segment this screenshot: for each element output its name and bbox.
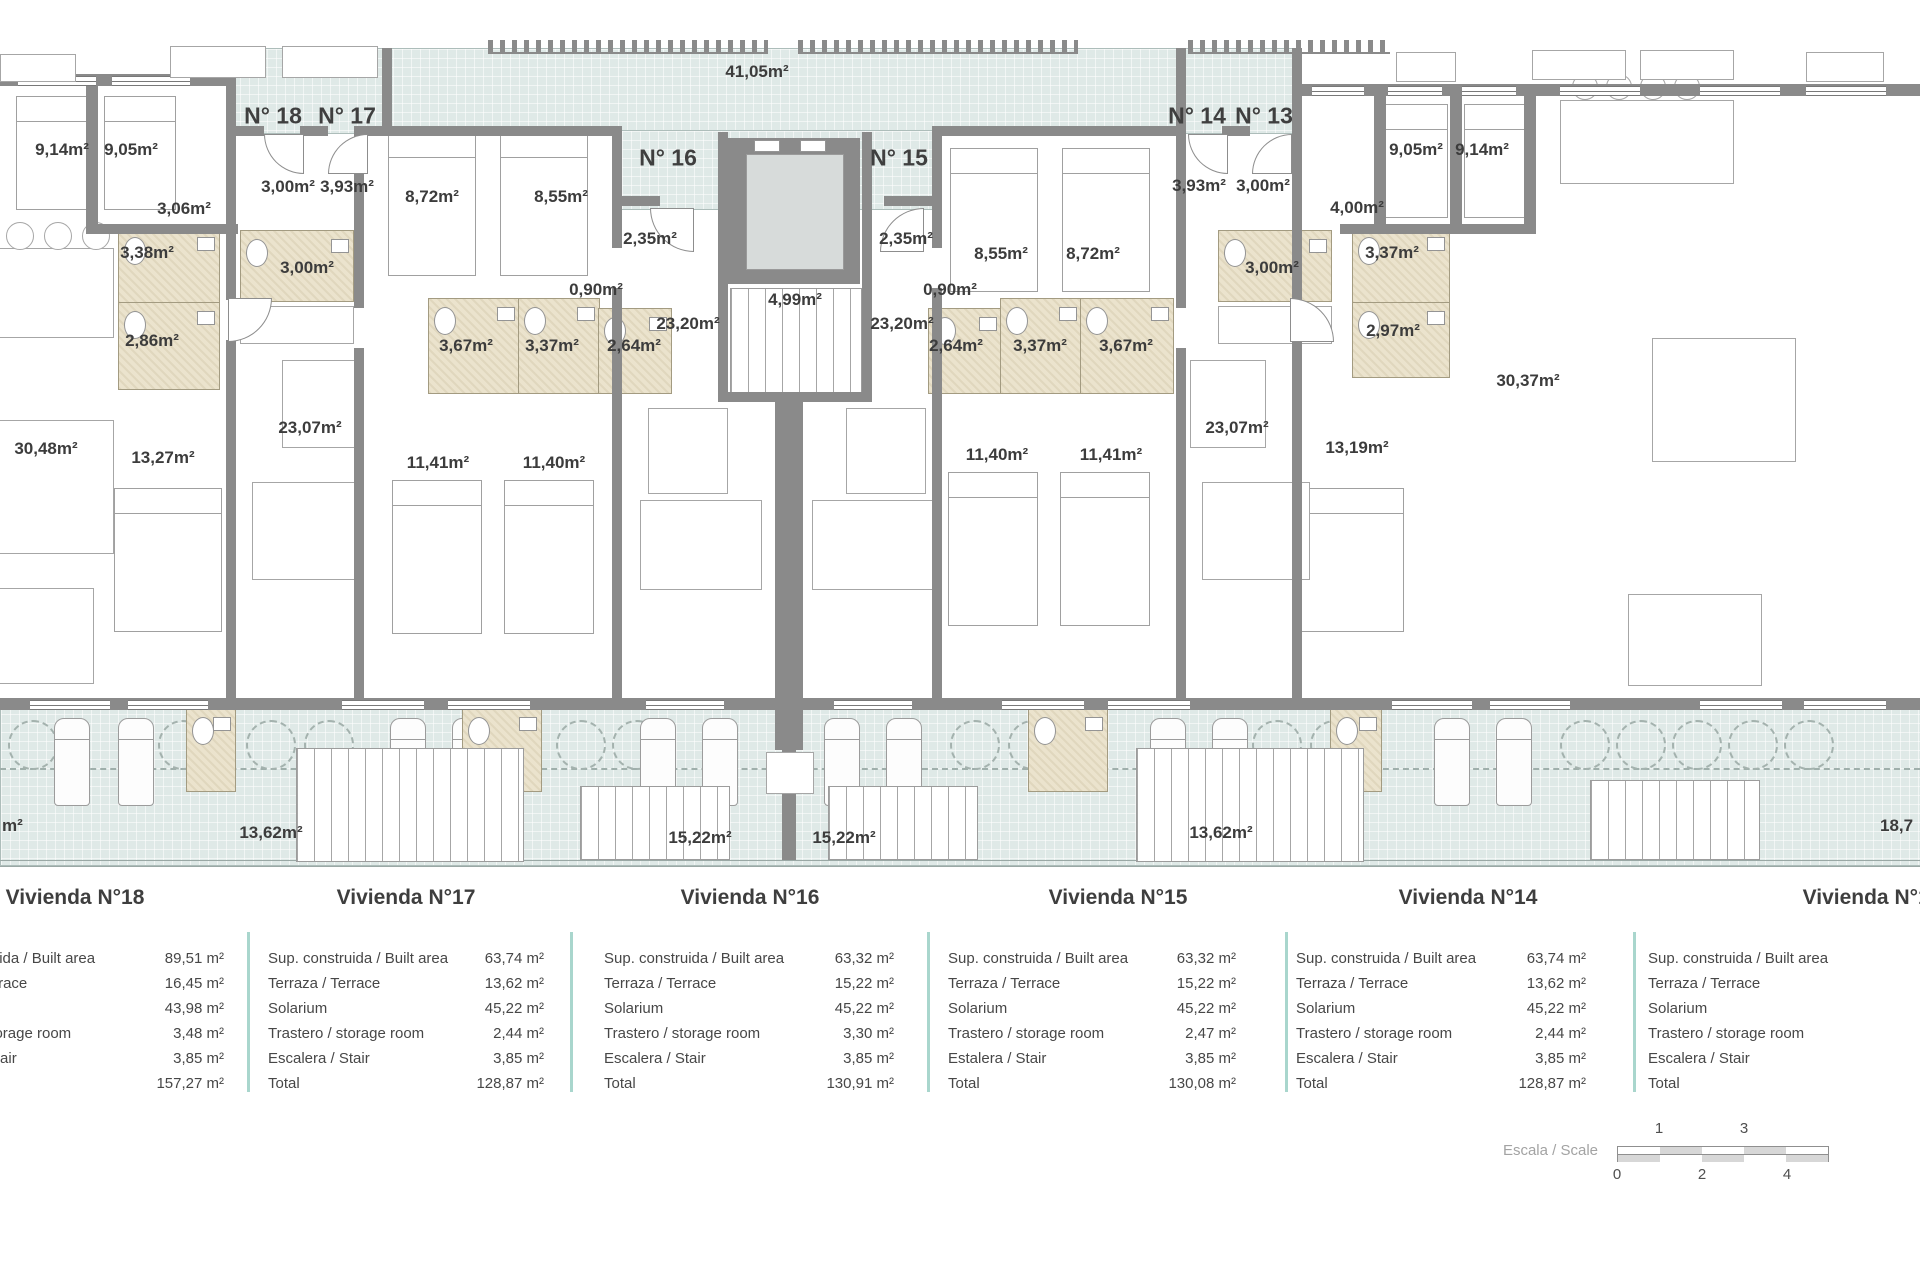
row-label: Solarium (948, 996, 1007, 1021)
door-arc (1290, 298, 1334, 342)
window (1490, 700, 1570, 710)
row-value: 15,22 m² (835, 971, 894, 996)
table-row: Terraza / Terrace15,22 m² (604, 971, 894, 996)
toilet-fixture (246, 239, 268, 267)
vivienda-16-table: Sup. construida / Built area63,32 m² Ter… (604, 946, 894, 1096)
wall (0, 698, 1920, 710)
table-title: Vivienda N°16 (681, 886, 820, 910)
row-value: 128,87 m² (1518, 1071, 1586, 1096)
table-row: Total (1648, 1071, 1920, 1096)
room-area-label: 15,22m² (812, 828, 875, 848)
table-row: Estalera / Stair3,85 m² (948, 1046, 1236, 1071)
table-title: Vivienda N°18 (6, 886, 145, 910)
table-row: Sup. construida / Built area63,32 m² (948, 946, 1236, 971)
row-label: Escalera / Stair (1648, 1046, 1750, 1071)
sun-lounger (118, 718, 154, 806)
bed (114, 488, 222, 632)
sink-fixture (979, 317, 997, 331)
row-label: Trastero / storage room (948, 1021, 1104, 1046)
row-label: Escalera / Stair (604, 1046, 706, 1071)
stairs (580, 786, 730, 860)
row-value: 15,22 m² (1177, 971, 1236, 996)
row-value: 130,08 m² (1168, 1071, 1236, 1096)
wall (932, 126, 942, 248)
window (1002, 700, 1084, 710)
terrace-circle (246, 720, 296, 770)
row-value: 3,85 m² (1535, 1046, 1586, 1071)
table-row: Escalera / Stair3,85 m² (0, 1046, 224, 1071)
scale-tick: 3 (1740, 1120, 1748, 1137)
row-value: 45,22 m² (1527, 996, 1586, 1021)
bathroom-pod (118, 228, 220, 304)
room-area-label: 2,64m² (929, 336, 983, 356)
row-label: Escalera / Stair (0, 1046, 17, 1071)
table-divider (927, 932, 930, 1092)
room-area-label: 3,93m² (1172, 176, 1226, 196)
room-area-label: 4,99m² (768, 290, 822, 310)
furniture (846, 408, 926, 494)
room-area-label: 11,40m² (523, 453, 585, 473)
sink-fixture (577, 307, 595, 321)
wall (1176, 126, 1186, 308)
room-area-label: 41,05m² (725, 62, 788, 82)
wall (1176, 348, 1186, 700)
room-area-label: 3,06m² (157, 199, 211, 219)
room-area-label: 11,41m² (407, 453, 469, 473)
row-label: Total (1296, 1071, 1328, 1096)
table-row: Sup. construida / Built area63,74 m² (268, 946, 544, 971)
table-divider (570, 932, 573, 1092)
wall (226, 340, 236, 700)
table-row: Trastero / storage room3,30 m² (604, 1021, 894, 1046)
parapet-box (170, 46, 266, 78)
row-value: 2,44 m² (1535, 1021, 1586, 1046)
room-area-label: 13,27m² (131, 448, 194, 468)
room-area-label: 0,90m² (569, 280, 623, 300)
room-area-label: 18,7 (1880, 816, 1913, 836)
room-area-label: 8,55m² (974, 244, 1028, 264)
row-label: Total (948, 1071, 980, 1096)
table-title: Vivienda N°15 (1049, 886, 1188, 910)
furniture (648, 408, 728, 494)
table-row: Terraza / Terrace13,62 m² (268, 971, 544, 996)
table-row: Total130,91 m² (604, 1071, 894, 1096)
sink-fixture (497, 307, 515, 321)
row-label: Solarium (1648, 996, 1707, 1021)
room-area-label: 3,37m² (525, 336, 579, 356)
room-area-label: 23,20m² (656, 314, 719, 334)
stairs (828, 786, 978, 860)
window (448, 700, 530, 710)
railing-hatch (1188, 40, 1390, 54)
furniture (640, 500, 762, 590)
row-label: Total (1648, 1071, 1680, 1096)
table-row: Terraza / Terrace16,45 m² (0, 971, 224, 996)
bed (504, 480, 594, 634)
row-value: 3,85 m² (173, 1046, 224, 1071)
window (1560, 86, 1640, 96)
stairs (296, 748, 524, 862)
unit-number-label: N° 15 (870, 145, 928, 172)
door-arc (1188, 134, 1228, 174)
vivienda-13-table: Sup. construida / Built area Terraza / T… (1648, 946, 1920, 1096)
stairs (1136, 748, 1364, 862)
window (646, 700, 724, 710)
room-area-label: 13,62m² (239, 823, 302, 843)
row-value: 130,91 m² (826, 1071, 894, 1096)
room-area-label: 2,64m² (607, 336, 661, 356)
terrace-rail (0, 860, 1920, 867)
terrace-circle (8, 720, 58, 770)
unit-number-label: N° 14 (1168, 103, 1226, 130)
toilet-fixture (192, 717, 214, 745)
furniture (252, 482, 360, 580)
wall (226, 48, 236, 300)
row-value: 3,85 m² (493, 1046, 544, 1071)
room-area-label: m² (2, 816, 23, 836)
wall (718, 392, 872, 402)
terrace-circle (1616, 720, 1666, 770)
row-value: 63,32 m² (1177, 946, 1236, 971)
row-value: 3,48 m² (173, 1021, 224, 1046)
row-label: Trastero / storage room (1648, 1021, 1804, 1046)
row-label: Sup. construida / Built area (604, 946, 784, 971)
toilet-fixture (1034, 717, 1056, 745)
terrace-circle (556, 720, 606, 770)
scale-tick: 1 (1655, 1120, 1663, 1137)
sink-fixture (197, 237, 215, 251)
room-area-label: 11,41m² (1080, 445, 1142, 465)
table-divider (1633, 932, 1636, 1092)
row-value: 45,22 m² (835, 996, 894, 1021)
bed (1464, 104, 1528, 218)
row-label: Trastero / storage room (1296, 1021, 1452, 1046)
table-row: Escalera / Stair3,85 m² (268, 1046, 544, 1071)
table-divider (247, 932, 250, 1092)
scale-tick: 4 (1783, 1166, 1791, 1183)
furniture (1560, 100, 1734, 184)
wall (1524, 84, 1536, 234)
elevator-door (754, 140, 780, 152)
table-row: Trastero / storage room2,44 m² (1296, 1021, 1586, 1046)
room-area-label: 3,37m² (1013, 336, 1067, 356)
unit-number-label: N° 13 (1235, 103, 1293, 130)
wall (1292, 340, 1302, 700)
row-label: Sup. construida / Built area (1648, 946, 1828, 971)
vivienda-14-table: Sup. construida / Built area63,74 m² Ter… (1296, 946, 1586, 1096)
toilet-fixture (1336, 717, 1358, 745)
room-area-label: 9,05m² (104, 140, 158, 160)
table-row: Total128,87 m² (1296, 1071, 1586, 1096)
sink-fixture (1309, 239, 1327, 253)
row-label: Sup. construida / Built area (268, 946, 448, 971)
wall (718, 132, 728, 200)
wall (942, 126, 1186, 136)
room-area-label: 23,07m² (278, 418, 341, 438)
bathroom-pod (1028, 708, 1108, 792)
table-row: Trastero / storage room2,44 m² (268, 1021, 544, 1046)
sink-fixture (519, 717, 537, 731)
table-row: Total128,87 m² (268, 1071, 544, 1096)
row-label: Solarium (1296, 996, 1355, 1021)
row-label: Solarium (604, 996, 663, 1021)
window (128, 700, 208, 710)
bathroom-pod (1352, 228, 1450, 304)
terrace-circle (950, 720, 1000, 770)
room-area-label: 0,90m² (923, 280, 977, 300)
window (1108, 700, 1190, 710)
row-value: 3,85 m² (843, 1046, 894, 1071)
table-title: Vivienda N°14 (1399, 886, 1538, 910)
room-area-label: 3,00m² (261, 177, 315, 197)
row-value: 45,22 m² (1177, 996, 1236, 1021)
room-area-label: 3,67m² (439, 336, 493, 356)
room-area-label: 2,35m² (623, 229, 677, 249)
furniture (812, 500, 934, 590)
table-row: Sup. construida / Built area63,32 m² (604, 946, 894, 971)
toilet-fixture (524, 307, 546, 335)
room-area-label: 3,93m² (320, 177, 374, 197)
table-row: Total130,08 m² (948, 1071, 1236, 1096)
sun-lounger (54, 718, 90, 806)
furniture (0, 248, 114, 338)
sink-fixture (1427, 237, 1445, 251)
row-label: Terraza / Terrace (1648, 971, 1760, 996)
row-label: Trastero / storage room (604, 1021, 760, 1046)
toilet-fixture (434, 307, 456, 335)
row-value: 2,44 m² (493, 1021, 544, 1046)
room-area-label: 3,37m² (1365, 243, 1419, 263)
row-value: 89,51 m² (165, 946, 224, 971)
window (1804, 700, 1886, 710)
bed (1296, 488, 1404, 632)
floor-plan-sheet: N° 18N° 17N° 16N° 15N° 14N° 139,14m²9,05… (0, 0, 1920, 1280)
furniture (1652, 338, 1796, 462)
chair (44, 222, 72, 250)
wall (354, 348, 364, 700)
room-area-label: 13,19m² (1325, 438, 1388, 458)
stairs (1590, 780, 1760, 860)
room-area-label: 9,14m² (1455, 140, 1509, 160)
row-label: Terraza / Terrace (604, 971, 716, 996)
room-area-label: 8,55m² (534, 187, 588, 207)
room-area-label: 30,48m² (14, 439, 77, 459)
row-label: Sup. construida / Built area (1296, 946, 1476, 971)
room-area-label: 3,00m² (280, 258, 334, 278)
room-area-label: 2,86m² (125, 331, 179, 351)
bathroom-pod (186, 708, 236, 792)
elevator-door (800, 140, 826, 152)
row-value: 13,62 m² (1527, 971, 1586, 996)
toilet-fixture (468, 717, 490, 745)
wall (862, 200, 872, 400)
furniture (1628, 594, 1762, 686)
window (1700, 86, 1780, 96)
table-divider (1285, 932, 1288, 1092)
unit-number-label: N° 16 (639, 145, 697, 172)
row-label: Total (604, 1071, 636, 1096)
row-label: Trastero / storage room (268, 1021, 424, 1046)
row-value: 63,74 m² (1527, 946, 1586, 971)
table-row: Terraza / Terrace15,22 m² (948, 971, 1236, 996)
elevator-cab (746, 154, 844, 270)
row-label: Total (268, 1071, 300, 1096)
row-value: 157,27 m² (156, 1071, 224, 1096)
terrace-circle (1728, 720, 1778, 770)
toilet-fixture (1086, 307, 1108, 335)
bed (1384, 104, 1448, 218)
row-label: Escalera / Stair (268, 1046, 370, 1071)
sink-fixture (1151, 307, 1169, 321)
table-title: Vivienda N°17 (337, 886, 476, 910)
bed (1060, 472, 1150, 626)
room-area-label: 3,00m² (1236, 176, 1290, 196)
table-row: Sup. construida / Built area63,74 m² (1296, 946, 1586, 971)
window (834, 700, 912, 710)
scale-label: Escala / Scale (1503, 1142, 1598, 1159)
window (30, 700, 110, 710)
sink-fixture (331, 239, 349, 253)
table-title: Vivienda N°13 (1803, 886, 1920, 910)
toilet-fixture (1224, 239, 1246, 267)
sink-fixture (1359, 717, 1377, 731)
sink-fixture (1059, 307, 1077, 321)
window (1700, 700, 1782, 710)
row-label: Estalera / Stair (948, 1046, 1046, 1071)
railing-hatch (798, 40, 1078, 54)
row-value: 2,47 m² (1185, 1021, 1236, 1046)
unit-number-label: N° 17 (318, 103, 376, 130)
window (342, 700, 424, 710)
row-value: 63,32 m² (835, 946, 894, 971)
room-area-label: 8,72m² (1066, 244, 1120, 264)
table-row: Sup. construida / Built area89,51 m² (0, 946, 224, 971)
room-area-label: 11,40m² (966, 445, 1028, 465)
room-area-label: 3,00m² (1245, 258, 1299, 278)
window (1392, 700, 1472, 710)
window (1312, 86, 1364, 96)
table-row: Solarium45,22 m² (948, 996, 1236, 1021)
scale-tick: 2 (1698, 1166, 1706, 1183)
row-value: 128,87 m² (476, 1071, 544, 1096)
room-area-label: 30,37m² (1496, 371, 1559, 391)
sink-fixture (197, 311, 215, 325)
wall (364, 126, 612, 136)
room-area-label: 9,05m² (1389, 140, 1443, 160)
window (1462, 86, 1516, 96)
table-row: Trastero / storage room2,47 m² (948, 1021, 1236, 1046)
table-row: Solarium (1648, 996, 1920, 1021)
row-label: Terraza / Terrace (948, 971, 1060, 996)
wall (718, 200, 728, 400)
row-label: Sup. construida / Built area (948, 946, 1128, 971)
room-area-label: 15,22m² (668, 828, 731, 848)
table-row: Total157,27 m² (0, 1071, 224, 1096)
vivienda-17-table: Sup. construida / Built area63,74 m² Ter… (268, 946, 544, 1096)
unit-number-label: N° 18 (244, 103, 302, 130)
parapet-box (1640, 50, 1734, 80)
window (1806, 86, 1886, 96)
terrace-circle (1560, 720, 1610, 770)
bed (950, 148, 1038, 292)
spine-wall (775, 402, 803, 750)
row-label: Terraza / Terrace (268, 971, 380, 996)
window (1388, 86, 1442, 96)
vivienda-15-table: Sup. construida / Built area63,32 m² Ter… (948, 946, 1236, 1096)
table-row: Escalera / Stair3,85 m² (604, 1046, 894, 1071)
row-value: 13,62 m² (485, 971, 544, 996)
vivienda-18-table: Sup. construida / Built area89,51 m² Ter… (0, 946, 224, 1096)
bed (1062, 148, 1150, 292)
room-area-label: 3,38m² (120, 243, 174, 263)
table-row: Terraza / Terrace13,62 m² (1296, 971, 1586, 996)
door-arc (1252, 134, 1292, 174)
sink-fixture (213, 717, 231, 731)
scale-bar-graphic (1617, 1146, 1829, 1162)
table-row: Trastero / storage room3,48 m² (0, 1021, 224, 1046)
room-area-label: 4,00m² (1330, 198, 1384, 218)
parapet-box (1806, 52, 1884, 82)
table-row: Terraza / Terrace (1648, 971, 1920, 996)
bed (948, 472, 1038, 626)
row-label: Terraza / Terrace (1296, 971, 1408, 996)
sun-lounger (1496, 718, 1532, 806)
row-label: Solarium (268, 996, 327, 1021)
terrace-circle (1784, 720, 1834, 770)
terrace-circle (1672, 720, 1722, 770)
row-value: 63,74 m² (485, 946, 544, 971)
table-row: Escalera / Stair (1648, 1046, 1920, 1071)
sun-lounger (1434, 718, 1470, 806)
bed (392, 480, 482, 634)
table-row: Escalera / Stair3,85 m² (1296, 1046, 1586, 1071)
room-area-label: 9,14m² (35, 140, 89, 160)
parapet-box (1532, 50, 1626, 80)
row-label: Sup. construida / Built area (0, 946, 95, 971)
door-arc (328, 134, 368, 174)
railing-hatch (488, 40, 768, 54)
door-arc (264, 134, 304, 174)
row-value: 43,98 m² (165, 996, 224, 1021)
row-value: 3,85 m² (1185, 1046, 1236, 1071)
room-area-label: 13,62m² (1189, 823, 1252, 843)
wall (1340, 224, 1532, 234)
row-value: 3,30 m² (843, 1021, 894, 1046)
table-row: Trastero / storage room (1648, 1021, 1920, 1046)
wall (612, 126, 622, 248)
toilet-fixture (1006, 307, 1028, 335)
row-label: Escalera / Stair (1296, 1046, 1398, 1071)
table-row: Solarium45,22 m² (604, 996, 894, 1021)
room-area-label: 2,35m² (879, 229, 933, 249)
furniture (0, 588, 94, 684)
table-row: Solarium45,22 m² (1296, 996, 1586, 1021)
sink-fixture (1427, 311, 1445, 325)
row-value: 16,45 m² (165, 971, 224, 996)
room-area-label: 8,72m² (405, 187, 459, 207)
room-area-label: 2,97m² (1366, 321, 1420, 341)
wall (382, 48, 392, 136)
table-row: Solarium45,22 m² (268, 996, 544, 1021)
parapet-box (282, 46, 378, 78)
room-area-label: 23,20m² (870, 314, 933, 334)
row-label: Trastero / storage room (0, 1021, 71, 1046)
parapet-box (0, 54, 76, 82)
wall (86, 224, 238, 234)
sink-fixture (1085, 717, 1103, 731)
table-row: Solarium43,98 m² (0, 996, 224, 1021)
room-area-label: 23,07m² (1205, 418, 1268, 438)
